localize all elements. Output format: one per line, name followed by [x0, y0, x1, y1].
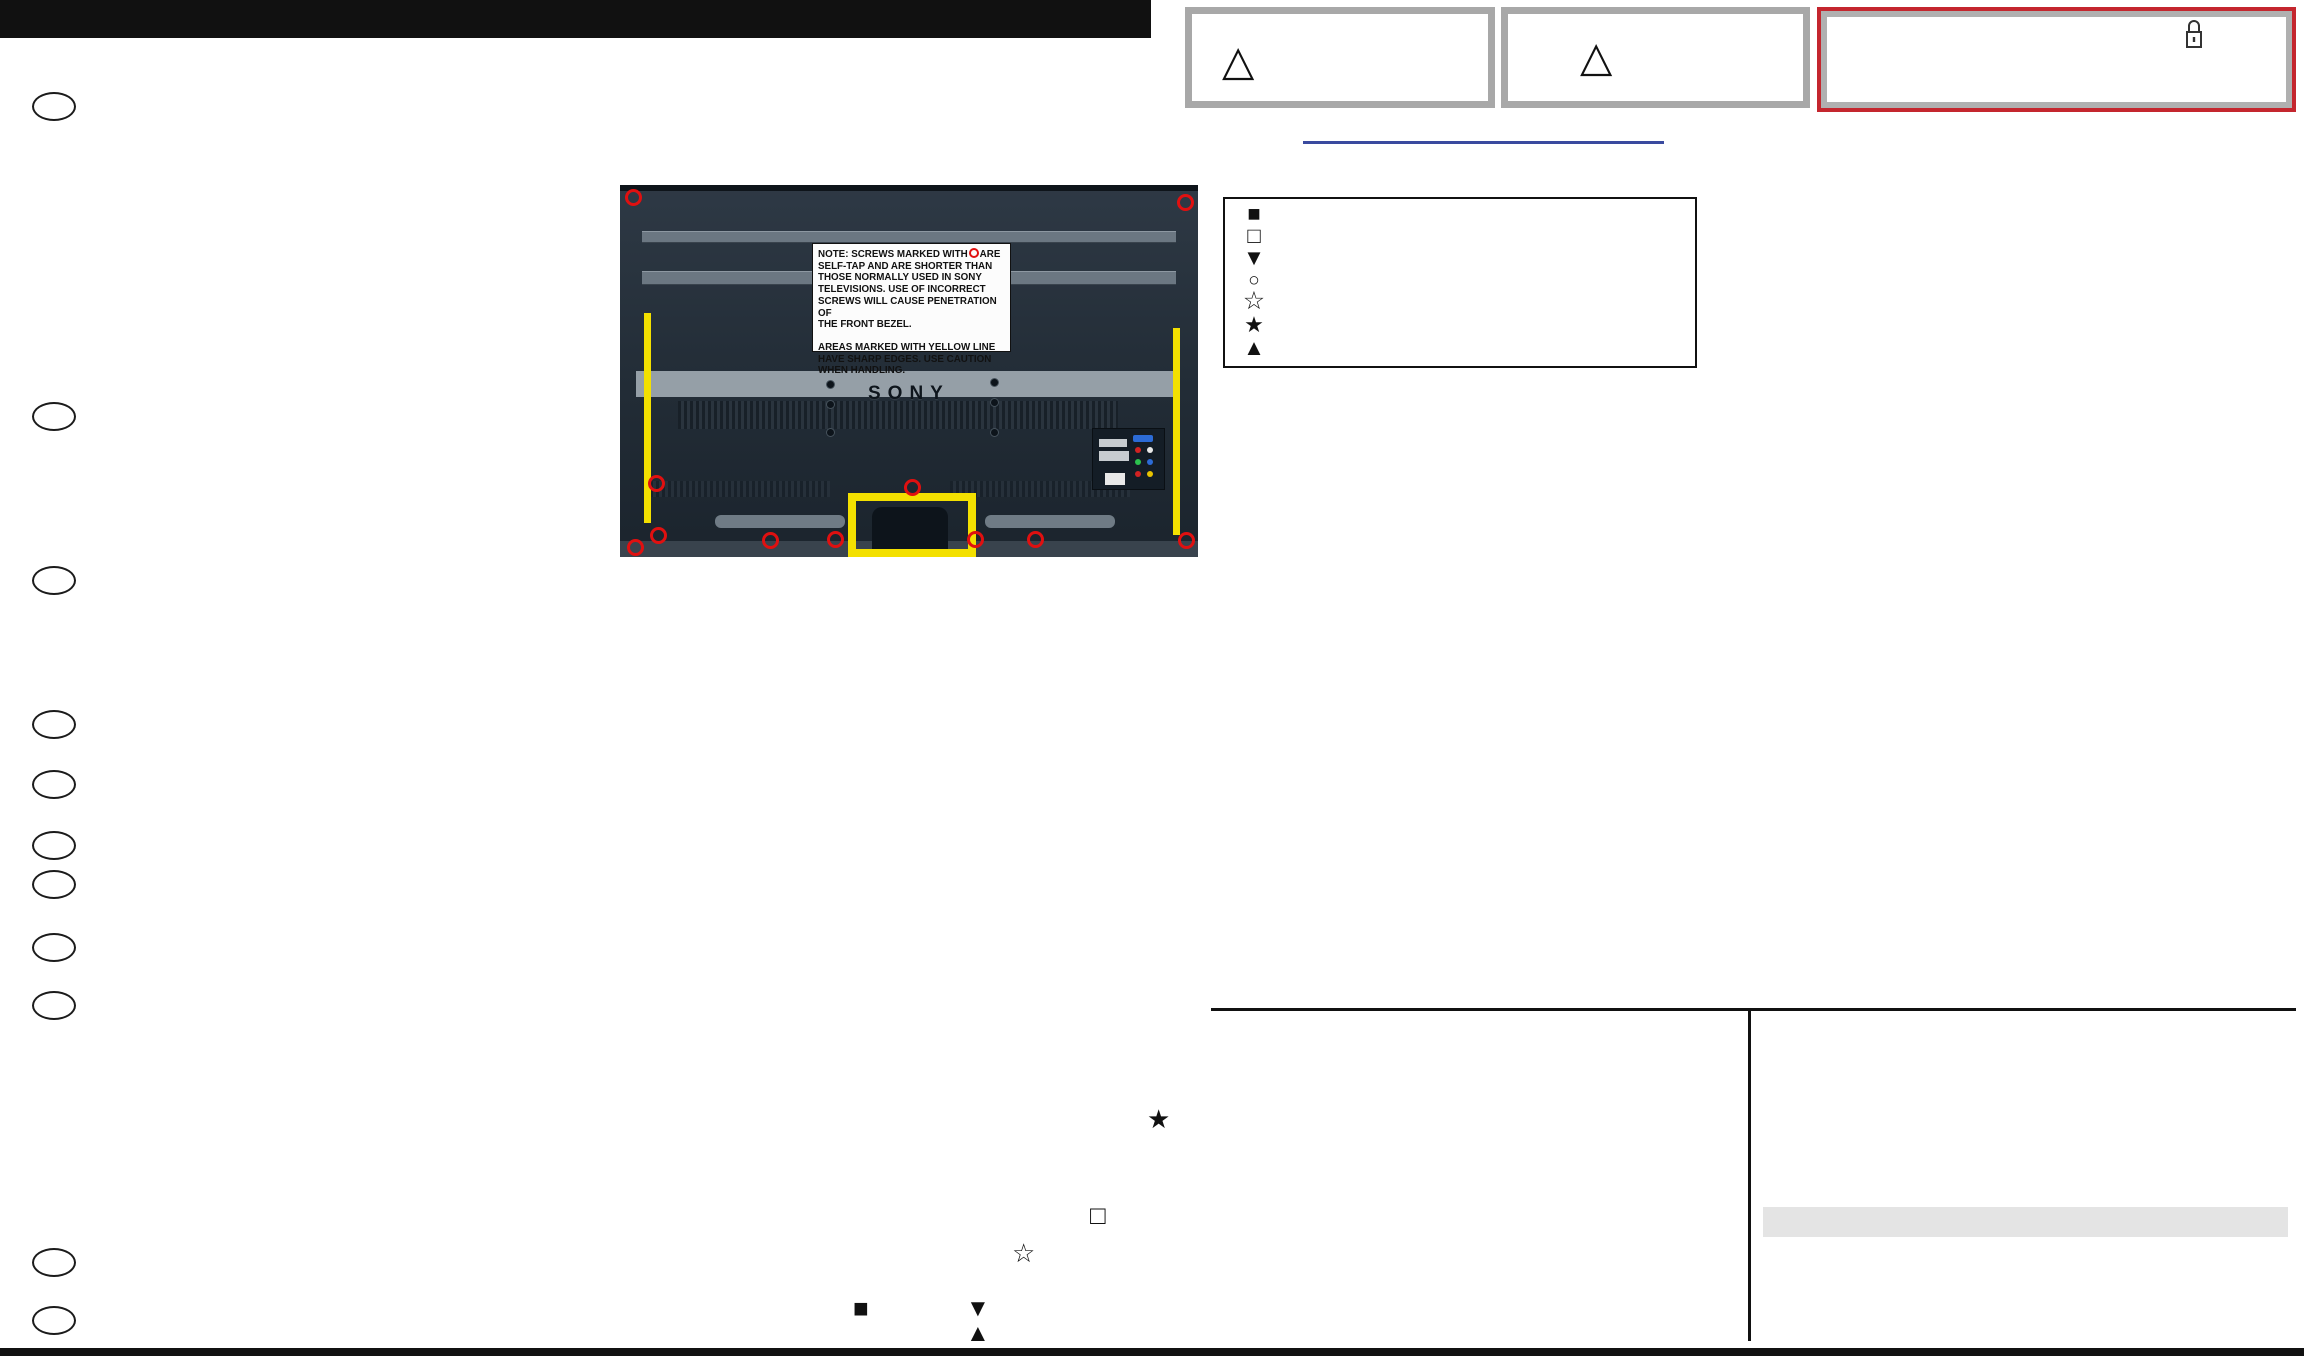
vesa-hole	[990, 378, 999, 387]
step-circle	[32, 770, 76, 799]
note-line: SELF-TAP AND ARE SHORTER THAN	[818, 261, 1005, 273]
section-divider-horizontal	[1211, 1008, 2296, 1011]
note-line: SCREWS WILL CAUSE PENETRATION OF	[818, 296, 1005, 319]
note-box: NOTE: SCREWS MARKED WITHARE SELF-TAP AND…	[812, 243, 1011, 352]
warning-triangle-icon: △	[1222, 40, 1254, 82]
screw-mark-down-triangle: ▼	[966, 1297, 990, 1321]
screw-marker	[827, 531, 844, 548]
step-circle	[32, 870, 76, 899]
legend-symbol-filled-star: ★	[1239, 313, 1269, 337]
screw-marker	[625, 189, 642, 206]
screw-marker	[762, 532, 779, 549]
top-title-bar	[0, 0, 1151, 38]
note-line: WHEN HANDLING.	[818, 365, 1005, 377]
screw-marker	[967, 531, 984, 548]
highlight-bar	[1763, 1207, 2288, 1237]
red-circle-symbol	[969, 248, 979, 258]
sony-logo: SONY	[868, 383, 950, 405]
vesa-hole	[826, 380, 835, 389]
note-line: THOSE NORMALLY USED IN SONY	[818, 272, 1005, 284]
warning-box-inner-border	[1821, 11, 2292, 108]
screw-mark-filled-square: ■	[853, 1295, 869, 1321]
photo-vent	[650, 481, 830, 497]
vesa-hole	[990, 398, 999, 407]
bottom-page-bar	[0, 1348, 2304, 1356]
screw-marker	[648, 475, 665, 492]
screw-mark-open-star: ☆	[1012, 1240, 1035, 1266]
warning-box-2: △	[1501, 7, 1810, 108]
step-circle	[32, 1306, 76, 1335]
photo-vent	[678, 401, 1118, 429]
note-line: THE FRONT BEZEL.	[818, 319, 1005, 331]
screw-mark-up-triangle: ▲	[966, 1322, 990, 1346]
section-divider-vertical	[1748, 1008, 1751, 1341]
lock-icon	[2183, 18, 2205, 52]
screw-marker	[627, 539, 644, 556]
warning-box-1: △	[1185, 7, 1495, 108]
photo-rail	[642, 231, 1176, 243]
photo-foot	[985, 515, 1115, 528]
screw-mark-open-square: □	[1090, 1202, 1106, 1228]
legend-symbol-down-triangle: ▼	[1239, 246, 1269, 270]
legend-symbol-filled-triangle: ▲	[1239, 336, 1269, 360]
warning-box-battery	[1817, 7, 2296, 112]
legend-symbol-open-star: ☆	[1239, 289, 1269, 313]
screw-marker	[904, 479, 921, 496]
screw-legend-box: ■ □ ▼ ○ ☆ ★ ▲	[1223, 197, 1697, 368]
yellow-caution-line-right	[1173, 328, 1180, 535]
step-circle	[32, 933, 76, 962]
manual-page: △ △ SONY	[0, 0, 2304, 1356]
step-circle	[32, 402, 76, 431]
photo-foot	[715, 515, 845, 528]
vesa-hole	[990, 428, 999, 437]
note-line: AREAS MARKED WITH YELLOW LINE	[818, 342, 1005, 354]
yellow-caution-line-left	[644, 313, 651, 523]
step-circle	[32, 991, 76, 1020]
connector-panel	[1092, 428, 1165, 490]
screw-marker	[1027, 531, 1044, 548]
link-underline[interactable]	[1303, 141, 1664, 144]
note-line1-pre: NOTE: SCREWS MARKED WITH	[818, 249, 968, 260]
vesa-hole	[826, 428, 835, 437]
step-circle	[32, 831, 76, 860]
yellow-caution-box-stand	[848, 493, 976, 557]
step-circle	[32, 710, 76, 739]
step-circle	[32, 1248, 76, 1277]
note-line: HAVE SHARP EDGES. USE CAUTION	[818, 354, 1005, 366]
warning-triangle-icon: △	[1580, 36, 1612, 78]
note-line: TELEVISIONS. USE OF INCORRECT	[818, 284, 1005, 296]
screw-marker	[1178, 532, 1195, 549]
note-line1-post: ARE	[980, 249, 1001, 260]
screw-marker	[1177, 194, 1194, 211]
step-circle	[32, 92, 76, 121]
step-circle	[32, 566, 76, 595]
screw-marker	[650, 527, 667, 544]
rear-cover-photo: SONY NOTE:	[620, 185, 1198, 557]
vesa-hole	[826, 400, 835, 409]
screw-mark-filled-star: ★	[1147, 1106, 1170, 1132]
